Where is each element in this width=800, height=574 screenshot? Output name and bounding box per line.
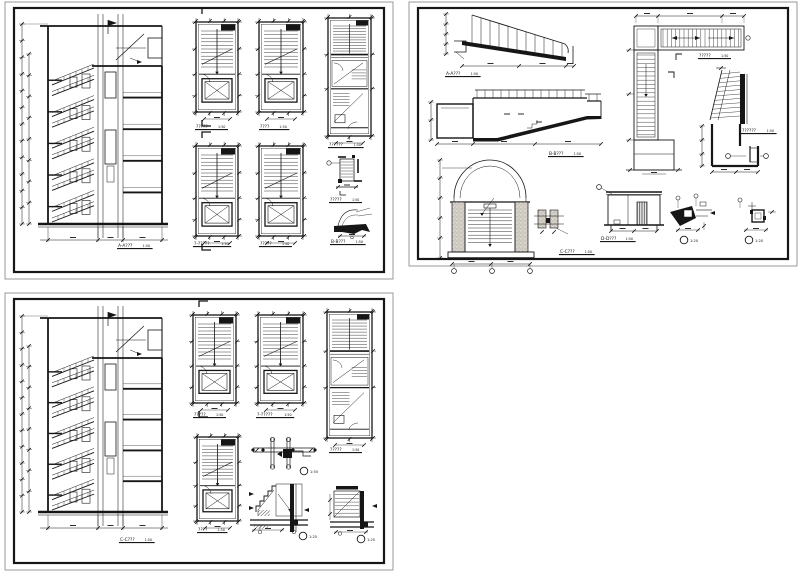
svg-text:1:50: 1:50 <box>354 143 361 147</box>
svg-text:1:50: 1:50 <box>352 198 359 202</box>
panel-top-left: A-A???1:50?????1:50????1:50?-?????1:50??… <box>5 2 393 279</box>
svg-text:1:50: 1:50 <box>216 413 223 417</box>
svg-text:1:20: 1:20 <box>755 239 764 243</box>
svg-text:1:50: 1:50 <box>356 240 363 244</box>
svg-text:1:50: 1:50 <box>574 152 581 156</box>
svg-text:1:50: 1:50 <box>284 413 291 417</box>
svg-text:1:50: 1:50 <box>721 54 728 58</box>
cad-svg: A-A???1:50?????1:50????1:50?-?????1:50??… <box>0 0 800 574</box>
panel-top-right: A-A???1:50B-B???1:50C-C???1:50D-D???1:50… <box>409 2 797 273</box>
svg-text:1:50: 1:50 <box>145 538 152 542</box>
svg-text:1:50: 1:50 <box>585 250 592 254</box>
svg-text:1:25: 1:25 <box>367 538 375 542</box>
svg-text:1:25: 1:25 <box>309 535 317 539</box>
svg-text:1:50: 1:50 <box>217 528 224 532</box>
svg-text:1:50: 1:50 <box>626 237 633 241</box>
svg-text:1:50: 1:50 <box>279 125 286 129</box>
svg-text:1:50: 1:50 <box>310 470 319 474</box>
svg-text:1:50: 1:50 <box>221 242 228 246</box>
cad-drawing-sheet-collage: A-A???1:50?????1:50????1:50?-?????1:50??… <box>0 0 800 574</box>
svg-text:1:50: 1:50 <box>352 448 359 452</box>
svg-text:1:50: 1:50 <box>218 125 225 129</box>
svg-text:1:50: 1:50 <box>143 244 150 248</box>
svg-text:1:50: 1:50 <box>471 72 478 76</box>
svg-text:1:50: 1:50 <box>282 242 289 246</box>
svg-text:1:50: 1:50 <box>767 129 774 133</box>
svg-text:1:20: 1:20 <box>690 239 699 243</box>
panel-bottom-left: C-C???1:50?????1:50?-?????1:50?????1:50?… <box>5 293 393 570</box>
